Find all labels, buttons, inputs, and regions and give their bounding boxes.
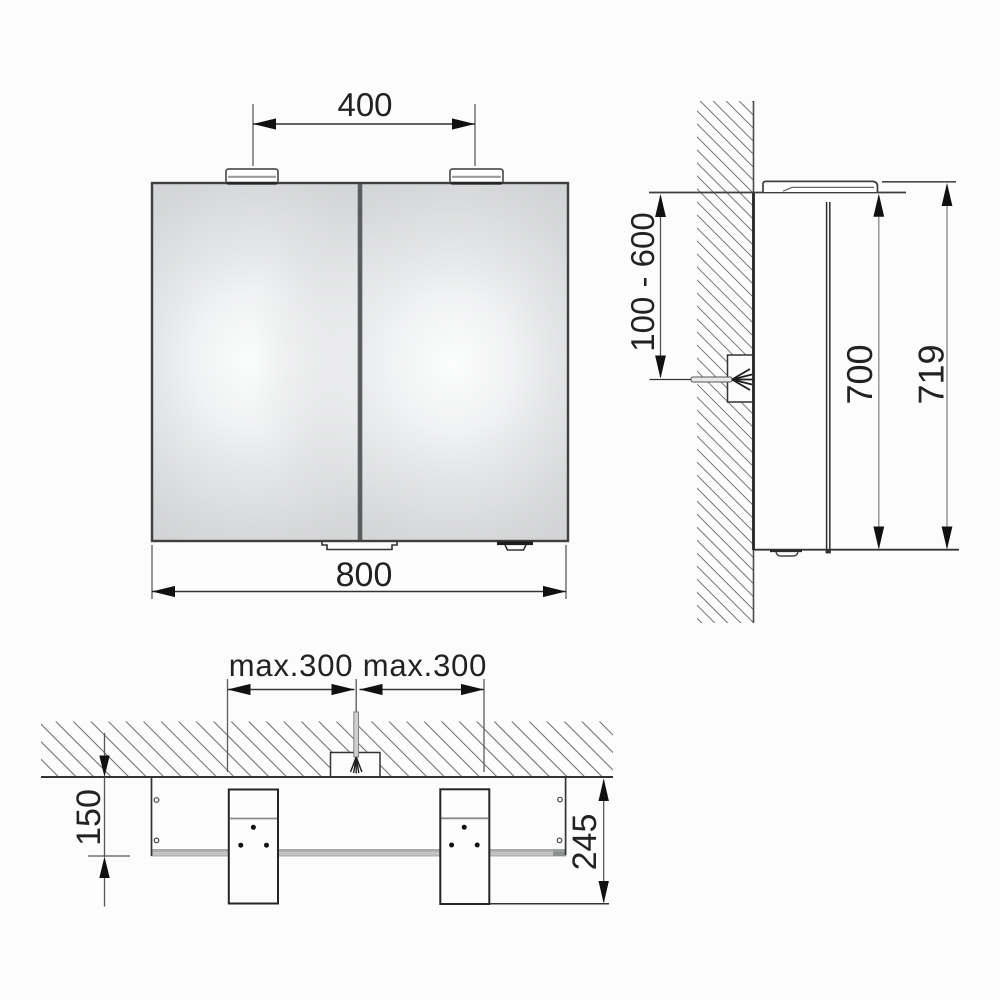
svg-text:800: 800: [336, 556, 393, 594]
svg-text:245: 245: [566, 814, 604, 871]
svg-text:max.300 max.300: max.300 max.300: [229, 648, 487, 683]
svg-text:719: 719: [911, 344, 952, 404]
svg-text:700: 700: [839, 344, 880, 404]
svg-text:100 - 600: 100 - 600: [624, 212, 661, 351]
svg-text:400: 400: [337, 86, 392, 123]
svg-text:150: 150: [70, 789, 108, 846]
